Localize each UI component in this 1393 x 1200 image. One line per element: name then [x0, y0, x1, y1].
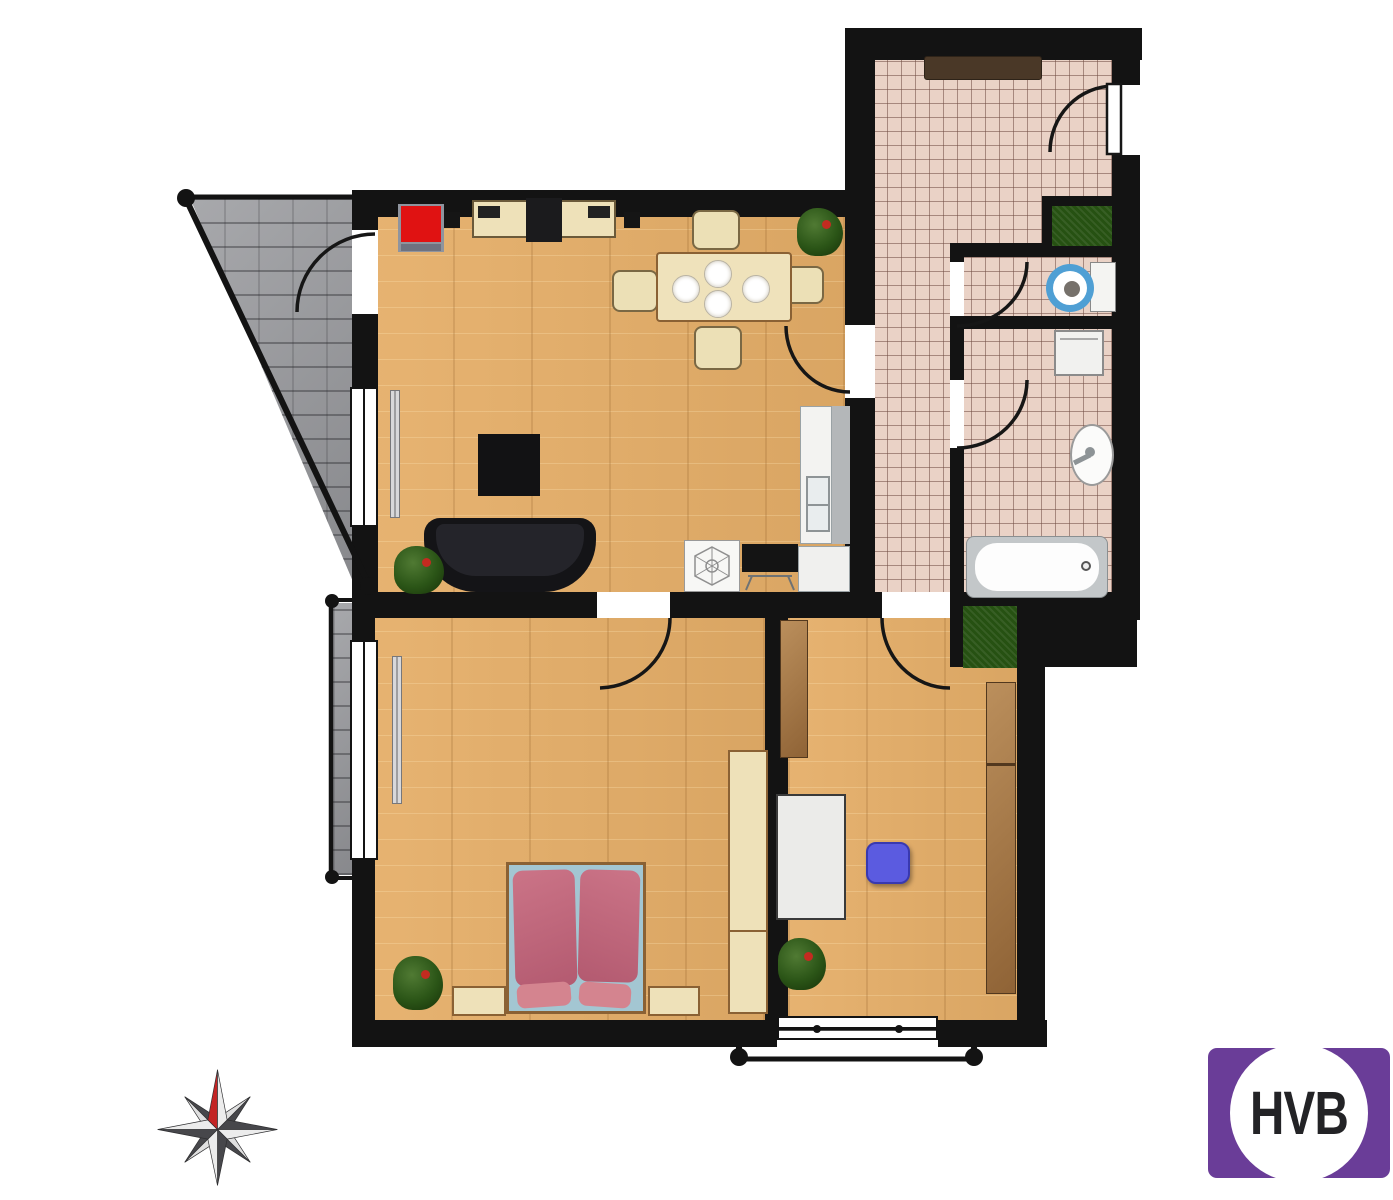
terrace-floor [190, 198, 354, 584]
niche-plant [963, 606, 1017, 668]
sofa [424, 518, 596, 592]
bedroom-wardrobe [728, 750, 768, 1014]
hvb-logo: HVB [1208, 1048, 1390, 1178]
red-armchair-base [401, 244, 441, 251]
dining-chair [694, 326, 742, 370]
washing-machine [1054, 330, 1104, 376]
plate [704, 290, 732, 318]
cooktop [742, 544, 798, 572]
compass-west-point [158, 1130, 218, 1140]
desk [776, 794, 846, 920]
bathroom-sink [1070, 424, 1114, 486]
compass-south-point [218, 1130, 228, 1186]
wall [670, 592, 845, 618]
wall [352, 592, 597, 618]
plant [394, 546, 444, 594]
plate [742, 275, 770, 303]
bathtub [966, 536, 1108, 598]
wall [845, 28, 875, 325]
red-armchair [398, 204, 444, 252]
bedroom-window [350, 640, 378, 860]
compass-north-point [208, 1070, 218, 1130]
wall [1112, 155, 1140, 620]
dining-chair [692, 210, 740, 250]
toilet-bowl-inner [1053, 271, 1087, 305]
radiator [390, 390, 400, 518]
wall [352, 527, 378, 592]
wall [1042, 196, 1112, 206]
plate [704, 260, 732, 288]
toilet-bowl [1046, 264, 1094, 312]
kitchen-corner-cabinet [798, 546, 850, 592]
logo-text: HVB [1224, 1048, 1373, 1178]
kitchen-cabinet [684, 540, 740, 592]
office-door-opening [882, 592, 950, 618]
wall [352, 860, 375, 1022]
wall [352, 592, 375, 640]
pillow [578, 981, 632, 1009]
wall [1112, 60, 1140, 85]
desk-chair [866, 842, 910, 884]
radiator [392, 656, 402, 804]
wall [845, 592, 882, 618]
dining-chair [612, 270, 658, 312]
plant [778, 938, 826, 990]
speaker [624, 212, 640, 228]
office-window [777, 1016, 938, 1040]
washing-machine-lid [1060, 338, 1098, 340]
wall [352, 314, 378, 387]
entrance-door-opening [1112, 85, 1140, 155]
wall [1017, 667, 1045, 1047]
compass-rose [150, 1062, 285, 1197]
doormat [924, 56, 1042, 80]
sink-divider [808, 504, 828, 506]
wall [950, 316, 964, 380]
nightstand [648, 986, 700, 1016]
compass-ne-point [218, 1097, 251, 1130]
coffee-table [478, 434, 540, 496]
plant [393, 956, 443, 1010]
floor-plan: HVB [0, 0, 1393, 1200]
plate [672, 275, 700, 303]
wall [938, 1020, 1047, 1047]
wall [950, 448, 964, 594]
pillow [516, 981, 572, 1009]
wardrobe-divider [987, 763, 1015, 766]
wall [352, 190, 378, 230]
compass-sw-point [185, 1130, 218, 1163]
living-room-window [350, 387, 378, 527]
wardrobe-divider [730, 930, 766, 932]
sofa-seat [436, 524, 584, 576]
wall [950, 243, 964, 262]
wall-plant [1052, 206, 1112, 246]
wall [964, 316, 1112, 329]
compass-se-point [218, 1130, 251, 1163]
sideboard-mark [478, 206, 500, 218]
bathtub-drain [1081, 561, 1091, 571]
duvet [578, 869, 641, 983]
dining-table [656, 252, 792, 322]
living-hall-door-opening [845, 325, 875, 398]
bathroom-door-opening [950, 380, 964, 448]
plant [797, 208, 843, 256]
compass-east-point [218, 1120, 278, 1130]
office-wardrobe [986, 682, 1016, 994]
tv [526, 198, 562, 242]
double-bed [506, 862, 646, 1014]
kitchen-counter-back [832, 406, 850, 544]
bedroom-door-opening [597, 592, 670, 618]
red-armchair-seat [401, 206, 441, 242]
compass-nw-point [185, 1097, 218, 1130]
kitchen-sink [806, 476, 830, 532]
speaker [444, 212, 460, 228]
sideboard-mark [588, 206, 610, 218]
duvet [512, 869, 577, 987]
nightstand [452, 986, 506, 1016]
wall [352, 1020, 777, 1047]
terrace-door-opening [352, 230, 378, 314]
office-shelf [780, 620, 808, 758]
wc-door-opening [950, 262, 964, 316]
